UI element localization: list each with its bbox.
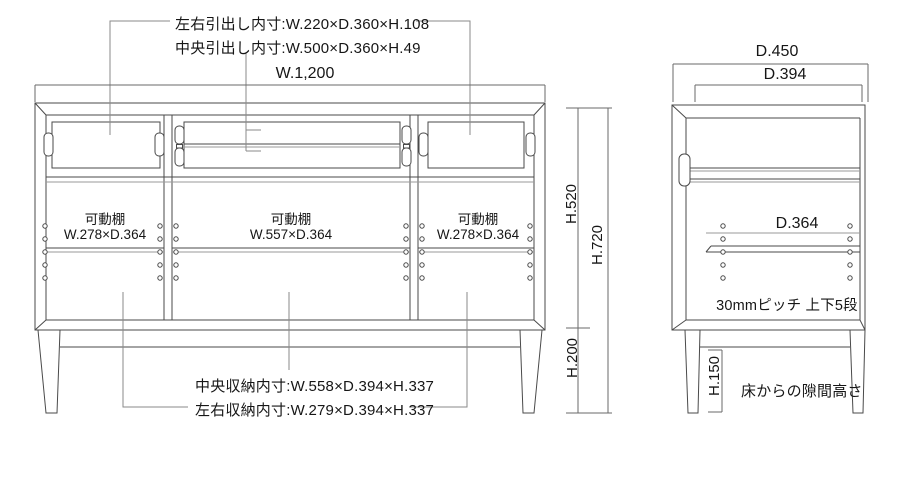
shelf-pitch-note: 30mmピッチ 上下5段 xyxy=(716,294,858,315)
shelf-name: 可動棚 xyxy=(250,212,332,227)
side-shelf xyxy=(706,233,860,252)
furniture-dimension-diagram: 左右引出し内寸:W.220×D.360×H.108 中央引出し内寸:W.500×… xyxy=(0,0,900,479)
shelf-label-left: 可動棚 W.278×D.364 xyxy=(64,212,146,242)
height-carcass-label: H.520 xyxy=(564,181,580,227)
height-legs-label: H.200 xyxy=(565,335,581,381)
side-dimension-lines xyxy=(673,64,868,412)
drawer-inner-note-line2: 中央引出し内寸:W.500×D.360×H.49 xyxy=(175,37,421,58)
shelf-label-center: 可動棚 W.557×D.364 xyxy=(250,212,332,242)
side-storage-note: 左右収納内寸:W.279×D.394×H.337 xyxy=(195,399,434,420)
shelf-name: 可動棚 xyxy=(64,212,146,227)
depth-inner-label: D.394 xyxy=(764,66,807,84)
shelf-size: W.278×D.364 xyxy=(437,227,519,242)
shelf-label-right: 可動棚 W.278×D.364 xyxy=(437,212,519,242)
height-total-label: H.720 xyxy=(590,222,606,268)
hinge-icon xyxy=(679,154,690,186)
floor-gap-dimension-label: H.150 xyxy=(707,353,723,399)
width-dimension-label: W.1,200 xyxy=(276,65,335,83)
floor-gap-note: 床からの隙間高さ xyxy=(741,380,863,401)
shelf-name: 可動棚 xyxy=(437,212,519,227)
drawer-runner-icons xyxy=(44,126,535,166)
shelf-size: W.278×D.364 xyxy=(64,227,146,242)
side-view xyxy=(672,64,868,413)
drawer-inner-note-line1: 左右引出し内寸:W.220×D.360×H.108 xyxy=(175,13,429,34)
shelf-depth-label: D.364 xyxy=(776,215,819,233)
depth-outer-label: D.450 xyxy=(756,43,799,61)
front-dimension-lines xyxy=(35,85,612,413)
shelf-size: W.557×D.364 xyxy=(250,227,332,242)
center-storage-note: 中央収納内寸:W.558×D.394×H.337 xyxy=(195,375,434,396)
front-drawer-zone xyxy=(44,122,535,182)
front-shelves xyxy=(46,248,534,252)
